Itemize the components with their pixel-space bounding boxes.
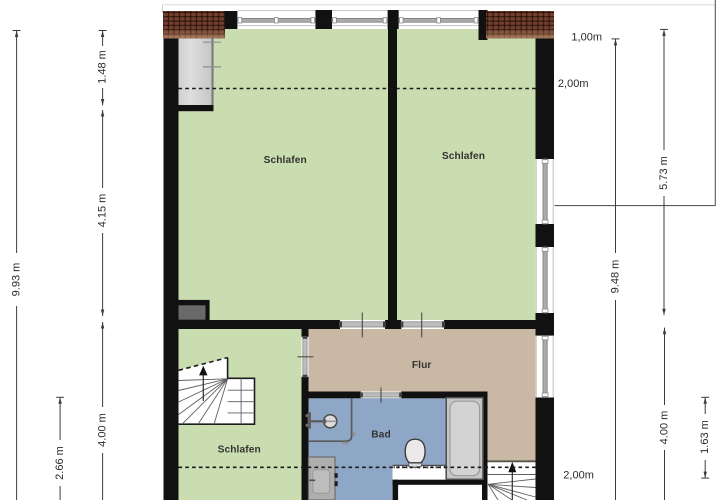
svg-text:2,00m: 2,00m: [558, 78, 589, 90]
svg-text:4.00 m: 4.00 m: [97, 413, 109, 447]
svg-text:2,00m: 2,00m: [563, 470, 594, 482]
svg-text:Schlafen: Schlafen: [218, 444, 261, 455]
svg-text:5.73 m: 5.73 m: [658, 156, 670, 190]
svg-text:Bad: Bad: [371, 429, 391, 440]
svg-text:1,00m: 1,00m: [571, 32, 602, 44]
svg-text:4.00 m: 4.00 m: [659, 411, 671, 445]
svg-text:9.93 m: 9.93 m: [11, 263, 23, 297]
svg-text:Schlafen: Schlafen: [264, 155, 307, 166]
svg-text:1.48 m: 1.48 m: [97, 50, 109, 84]
svg-text:2.66 m: 2.66 m: [54, 446, 66, 480]
svg-text:Schlafen: Schlafen: [442, 151, 485, 162]
svg-text:9.48 m: 9.48 m: [610, 260, 622, 294]
svg-text:4.15 m: 4.15 m: [97, 194, 109, 228]
svg-text:Flur: Flur: [412, 360, 432, 371]
svg-text:1.63 m: 1.63 m: [699, 420, 711, 454]
